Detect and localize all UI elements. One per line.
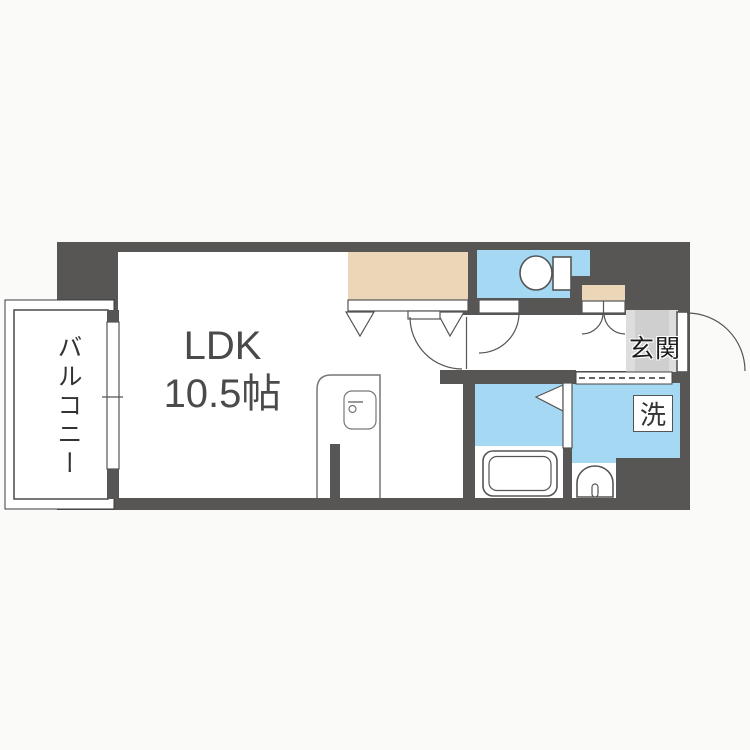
washbasin-faucet (592, 484, 598, 497)
toilet-floor-extension (570, 250, 590, 276)
entrance-door-icon (687, 313, 745, 371)
balcony-label: バルコニー (50, 334, 86, 494)
ldk-label: LDK 10.5帖 (100, 322, 345, 418)
entrance-label: 玄関 (626, 329, 684, 365)
closet-area (348, 252, 468, 300)
washroom-floor-lower (572, 383, 616, 463)
kitchen-knob (349, 406, 356, 413)
ldk-name: LDK (100, 322, 345, 370)
toilet-tank (553, 257, 571, 290)
wall-hall-washroom (440, 370, 576, 384)
washer-label: 洗 (640, 395, 666, 432)
wall-window-stub-bottom (107, 468, 119, 499)
kitchen-wall-stub (330, 444, 340, 498)
closet-front (348, 300, 468, 311)
hallway-floor (462, 315, 627, 371)
bathroom-door-leaf (563, 383, 572, 448)
bathtub-icon (483, 451, 557, 496)
ldk-size: 10.5帖 (100, 370, 345, 418)
toilet-door-leaf (479, 300, 519, 313)
entrance-step (576, 372, 672, 384)
storage-shelf (582, 285, 625, 301)
washing-machine-slot: 洗 (633, 395, 673, 432)
toilet-icon (520, 256, 552, 290)
ldk-door-leaf (408, 311, 440, 319)
floor-plan-page: { "title": "1K/LDK apartment floor plan"… (0, 0, 750, 750)
